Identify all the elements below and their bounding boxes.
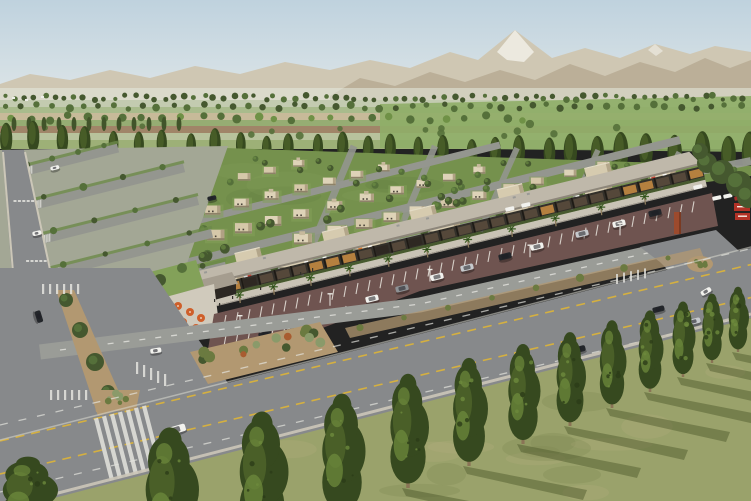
distant-tree — [427, 117, 434, 124]
crosswalk-stripe — [63, 284, 65, 294]
tree-highlight — [483, 186, 487, 190]
distant-tree — [540, 96, 546, 102]
distant-tree — [313, 96, 318, 101]
foliage-dot — [405, 455, 407, 457]
tree-highlight — [228, 179, 231, 182]
median-tree-highlight — [61, 295, 68, 302]
distant-tree — [410, 103, 416, 109]
distant-tree — [703, 93, 709, 99]
tree-highlight — [484, 179, 487, 182]
distant-tree — [308, 115, 314, 121]
foliage-dot — [263, 495, 266, 498]
tree-highlight — [526, 161, 529, 164]
distant-tree — [242, 93, 249, 100]
distant-tree — [661, 103, 668, 110]
tree-highlight — [452, 188, 456, 192]
foliage-dot — [250, 461, 255, 466]
distant-tree — [137, 114, 144, 121]
crosswalk-stripe — [39, 260, 42, 262]
distant-tree — [348, 116, 354, 122]
canopy-highlight — [511, 393, 524, 420]
house-window — [366, 198, 368, 200]
distant-tree — [53, 94, 59, 100]
distant-tree — [203, 93, 208, 98]
distant-tree — [230, 103, 237, 110]
shrub — [576, 274, 584, 282]
foliage-dot — [28, 477, 33, 482]
canopy-highlight — [515, 356, 525, 372]
tree-highlight — [372, 183, 375, 186]
tree-highlight — [456, 179, 459, 182]
distant-tree — [255, 112, 264, 121]
house-roof-volume — [296, 157, 300, 160]
distant-tree — [423, 127, 429, 133]
distant-tree — [375, 105, 383, 113]
distant-tree — [461, 115, 468, 122]
crosswalk-stripe — [143, 365, 145, 377]
distant-tree — [363, 97, 368, 102]
distant-tree — [470, 93, 476, 99]
tree-highlight — [425, 181, 428, 184]
foliage-dot — [165, 471, 169, 475]
foliage-dot — [400, 411, 402, 413]
foliage-dot — [178, 459, 181, 462]
foliage-dot — [713, 318, 715, 320]
foliage-dot — [710, 312, 715, 317]
distant-tree — [684, 94, 689, 99]
house-roof-volume — [269, 189, 274, 193]
crosswalk-stripe — [27, 200, 30, 202]
distant-tree — [603, 93, 608, 98]
foliage-dot — [416, 438, 420, 442]
poplar-highlight — [386, 135, 393, 156]
shrub — [253, 341, 261, 349]
house-front-edge — [390, 193, 404, 195]
house-front-edge — [323, 184, 336, 186]
crosswalk-stripe — [77, 284, 79, 294]
canopy-highlight — [677, 310, 684, 322]
crosswalk-stripe — [18, 200, 21, 202]
foliage-dot — [520, 392, 525, 397]
house-front-edge — [234, 206, 249, 208]
crosswalk-stripe — [70, 284, 72, 294]
distant-tree — [432, 95, 436, 99]
street-tree — [159, 164, 165, 170]
distant-tree — [721, 102, 726, 107]
distant-tree — [460, 97, 465, 102]
distant-poplar — [12, 117, 17, 131]
median-tree-highlight — [89, 356, 98, 365]
distant-tree — [232, 93, 239, 100]
foliage-dot — [342, 479, 346, 483]
distant-tree — [517, 106, 523, 112]
distant-tree — [270, 93, 275, 98]
distant-tree — [181, 93, 188, 100]
street-tree — [187, 230, 192, 235]
house-window — [393, 191, 395, 193]
distant-tree — [530, 102, 537, 109]
distant-tree — [550, 94, 555, 99]
distant-tree — [101, 97, 106, 102]
foliage-dot — [608, 385, 610, 387]
house-window — [300, 189, 302, 191]
house-window — [300, 214, 302, 216]
foliage-dot — [644, 323, 648, 327]
distant-tree — [556, 105, 563, 112]
person — [300, 272, 301, 275]
distant-tree — [501, 133, 507, 139]
shrub — [697, 262, 703, 268]
street-tree — [120, 174, 126, 180]
foliage-dot — [14, 472, 16, 474]
distant-tree — [151, 97, 157, 103]
foliage-dot — [330, 433, 334, 437]
foliage-dot — [157, 459, 161, 463]
shrub — [315, 337, 325, 347]
foliage-dot — [641, 345, 645, 349]
foliage-dot — [514, 378, 519, 383]
foliage-dot — [574, 383, 579, 388]
foliage-dot — [345, 446, 349, 450]
distant-tree — [504, 114, 513, 123]
farm-structure — [41, 96, 44, 98]
tree-highlight — [501, 161, 504, 164]
median-tree-highlight — [74, 324, 82, 332]
tree-highlight — [438, 194, 442, 198]
street-tree — [91, 217, 97, 223]
distant-tree — [573, 97, 580, 104]
foliage-dot — [270, 471, 273, 474]
distant-tree — [269, 128, 275, 134]
tree-highlight — [267, 220, 271, 224]
distant-tree — [691, 97, 696, 102]
distant-tree — [603, 103, 610, 110]
canopy-highlight — [326, 454, 343, 488]
distant-poplar — [72, 117, 77, 131]
house-window — [330, 206, 332, 208]
house-window — [475, 196, 477, 198]
distant-tree — [259, 104, 265, 110]
distant-tree — [337, 126, 342, 131]
distant-tree — [111, 102, 117, 108]
canopy-highlight — [249, 427, 264, 447]
distant-tree — [248, 131, 255, 138]
crosswalk-stripe — [64, 390, 66, 400]
grass-mottle — [543, 466, 601, 484]
foliage-dot — [643, 352, 646, 355]
crosswalk-stripe — [637, 270, 639, 280]
foliage-dot — [706, 308, 711, 313]
distant-tree — [61, 96, 66, 101]
umbrella-top — [200, 317, 202, 319]
distant-tree — [502, 95, 508, 101]
house-window — [212, 211, 214, 213]
crosswalk-stripe — [14, 200, 17, 202]
van-body — [712, 195, 722, 201]
house-window — [422, 184, 424, 186]
distant-tree — [152, 104, 160, 112]
distant-tree — [251, 93, 255, 97]
distant-tree — [492, 96, 497, 101]
distant-tree — [217, 112, 224, 119]
umbrella-top — [177, 305, 179, 307]
tree-highlight — [712, 162, 725, 175]
distant-tree — [721, 97, 725, 101]
distant-tree — [332, 103, 339, 110]
distant-tree — [133, 92, 139, 98]
distant-tree — [642, 95, 647, 100]
shrub — [272, 333, 281, 342]
distant-tree — [613, 124, 621, 132]
house-window — [302, 240, 304, 242]
poplar-highlight — [565, 135, 573, 160]
tree-highlight — [435, 203, 439, 207]
street-tree — [101, 143, 106, 148]
distant-tree — [64, 112, 71, 119]
distant-tree — [563, 96, 570, 103]
distant-tree — [292, 96, 298, 102]
shrub — [489, 295, 495, 301]
house-roof-volume — [364, 191, 369, 195]
foliage-dot — [256, 483, 259, 486]
distant-tree — [451, 105, 458, 112]
tree-highlight — [693, 144, 702, 153]
foliage-dot — [736, 303, 741, 308]
distant-tree — [319, 104, 326, 111]
distant-tree — [673, 93, 679, 99]
tree-highlight — [422, 175, 425, 178]
house-window — [363, 225, 365, 227]
crosswalk-stripe — [56, 284, 58, 294]
distant-tree — [413, 96, 418, 101]
crosswalk-stripe — [630, 271, 632, 281]
house-window — [334, 206, 336, 208]
distant-tree — [324, 94, 329, 99]
house-roof-volume — [382, 162, 386, 165]
tree-highlight — [253, 156, 256, 159]
distant-tree — [419, 97, 425, 103]
tree-highlight — [298, 168, 301, 171]
tree-highlight — [739, 188, 751, 200]
tree-highlight — [324, 216, 328, 220]
house-window — [444, 204, 446, 206]
shrub — [665, 255, 670, 260]
house-front-edge — [235, 231, 252, 233]
tree-highlight — [460, 198, 464, 202]
distant-tree — [351, 97, 356, 102]
foliage-dot — [459, 380, 463, 384]
distant-tree — [534, 94, 539, 99]
distant-tree — [3, 94, 7, 98]
poplar-highlight — [158, 131, 164, 150]
canopy-highlight — [562, 343, 571, 358]
distant-tree — [220, 95, 226, 101]
canopy-highlight — [14, 465, 31, 476]
foliage-dot — [529, 360, 533, 364]
distant-tree — [424, 102, 430, 108]
tree-highlight — [316, 159, 319, 162]
foliage-dot — [415, 448, 417, 450]
distant-tree — [514, 127, 521, 134]
distant-tree — [739, 96, 745, 102]
foliage-dot — [35, 481, 41, 487]
canopy-highlight — [398, 387, 410, 405]
house-front-edge — [356, 227, 373, 229]
foliage-dot — [609, 372, 611, 374]
distant-tree — [487, 103, 493, 109]
distant-tree — [303, 92, 310, 99]
house-roof-volume — [299, 231, 305, 235]
distant-tree — [526, 120, 534, 128]
distant-tree — [30, 95, 36, 101]
house-window — [238, 229, 240, 231]
distant-tree — [332, 94, 339, 101]
person — [260, 287, 261, 290]
foliage-dot — [576, 399, 581, 404]
distant-tree — [708, 104, 714, 110]
house-roof-volume — [332, 199, 337, 203]
distant-tree — [709, 92, 716, 99]
distant-tree — [614, 94, 618, 98]
distant-tree — [170, 94, 176, 100]
distant-tree — [543, 101, 548, 106]
distant-poplar — [117, 117, 122, 131]
foliage-dot — [562, 401, 565, 404]
foliage-dot — [469, 382, 471, 384]
house-front-edge — [293, 217, 309, 219]
street-tree — [79, 183, 87, 191]
foliage-dot — [683, 312, 688, 317]
distant-tree — [347, 101, 355, 109]
distant-tree — [393, 105, 399, 111]
crosswalk-stripe — [49, 234, 50, 242]
tree-highlight — [354, 180, 357, 183]
distant-tree — [694, 106, 700, 112]
poplar-highlight — [58, 126, 65, 148]
foliage-dot — [561, 372, 566, 377]
house-window — [267, 196, 269, 198]
tree — [177, 263, 187, 273]
distant-poplar — [162, 117, 167, 131]
distant-poplar — [132, 117, 137, 131]
foliage-dot — [734, 323, 737, 326]
canopy-highlight — [605, 331, 613, 345]
shrub — [123, 396, 129, 402]
crosswalk-stripe — [85, 390, 87, 400]
street-tree — [173, 197, 179, 203]
house-window — [215, 236, 217, 238]
house-front-edge — [351, 177, 363, 178]
distant-tree — [33, 101, 39, 107]
tree-highlight — [376, 167, 379, 170]
house-window — [208, 211, 210, 213]
distant-tree — [144, 94, 150, 100]
crosswalk-stripe — [50, 390, 52, 400]
house-front-edge — [564, 175, 576, 176]
foliage-dot — [460, 397, 464, 401]
umbrella-top — [189, 311, 191, 313]
foliage-dot — [566, 360, 569, 363]
crosswalk-stripe — [46, 235, 47, 243]
house-front-edge — [265, 198, 279, 200]
distant-tree — [618, 103, 625, 110]
foliage-dot — [43, 481, 46, 484]
shrub — [401, 315, 406, 320]
house-window — [359, 225, 361, 227]
distant-tree — [393, 96, 399, 102]
tree-highlight — [257, 223, 261, 227]
distant-tree — [81, 103, 87, 109]
distant-tree — [46, 117, 54, 125]
farm-structure — [12, 97, 15, 99]
poplar-highlight — [80, 127, 87, 149]
shrub — [445, 305, 451, 311]
house-front-edge — [294, 191, 307, 193]
street-tree — [103, 251, 108, 256]
poplar-highlight — [414, 137, 420, 155]
foliage-dot — [616, 373, 621, 378]
foliage-dot — [572, 358, 575, 361]
distant-tree — [385, 113, 392, 120]
crosswalk-stripe — [47, 234, 48, 242]
distant-tree — [79, 94, 85, 100]
house-front-edge — [472, 198, 486, 200]
poplar-highlight — [545, 139, 552, 161]
distant-tree — [632, 94, 637, 99]
foliage-dot — [525, 403, 528, 406]
distant-tree — [592, 93, 598, 99]
distant-tree — [49, 103, 55, 109]
distant-tree — [216, 104, 222, 110]
crosswalk-stripe — [157, 371, 159, 383]
distant-tree — [738, 102, 745, 109]
distant-tree — [663, 96, 668, 101]
distant-tree — [368, 114, 376, 122]
distant-tree — [524, 96, 529, 101]
house-front-edge — [360, 200, 374, 202]
person — [232, 296, 233, 299]
distant-poplar — [42, 117, 47, 131]
distant-tree — [586, 103, 593, 110]
crosswalk-stripe — [44, 260, 47, 262]
house-window — [297, 189, 299, 191]
canopy-highlight — [675, 339, 684, 360]
tree-highlight — [399, 169, 402, 172]
crosswalk-stripe — [26, 260, 29, 262]
shrub — [620, 264, 628, 272]
tree-highlight — [728, 173, 742, 187]
distant-tree — [201, 101, 208, 108]
tree-highlight — [530, 185, 534, 189]
distant-tree — [92, 97, 98, 103]
house-window — [237, 203, 239, 205]
distant-tree — [232, 114, 241, 123]
distant-tree — [126, 106, 131, 111]
crosswalk-stripe — [164, 374, 166, 386]
canopy-highlight — [331, 408, 344, 427]
crosswalk-stripe — [71, 390, 73, 400]
house-window — [241, 203, 243, 205]
farm-structure — [25, 99, 28, 101]
distant-tree — [621, 97, 625, 101]
distant-tree — [184, 104, 191, 111]
foliage-dot — [352, 474, 354, 476]
crosswalk-stripe — [644, 268, 646, 278]
foliage-dot — [704, 335, 708, 339]
distant-tree — [519, 117, 525, 123]
crosswalk-stripe — [150, 368, 152, 380]
tree-highlight — [625, 163, 628, 166]
